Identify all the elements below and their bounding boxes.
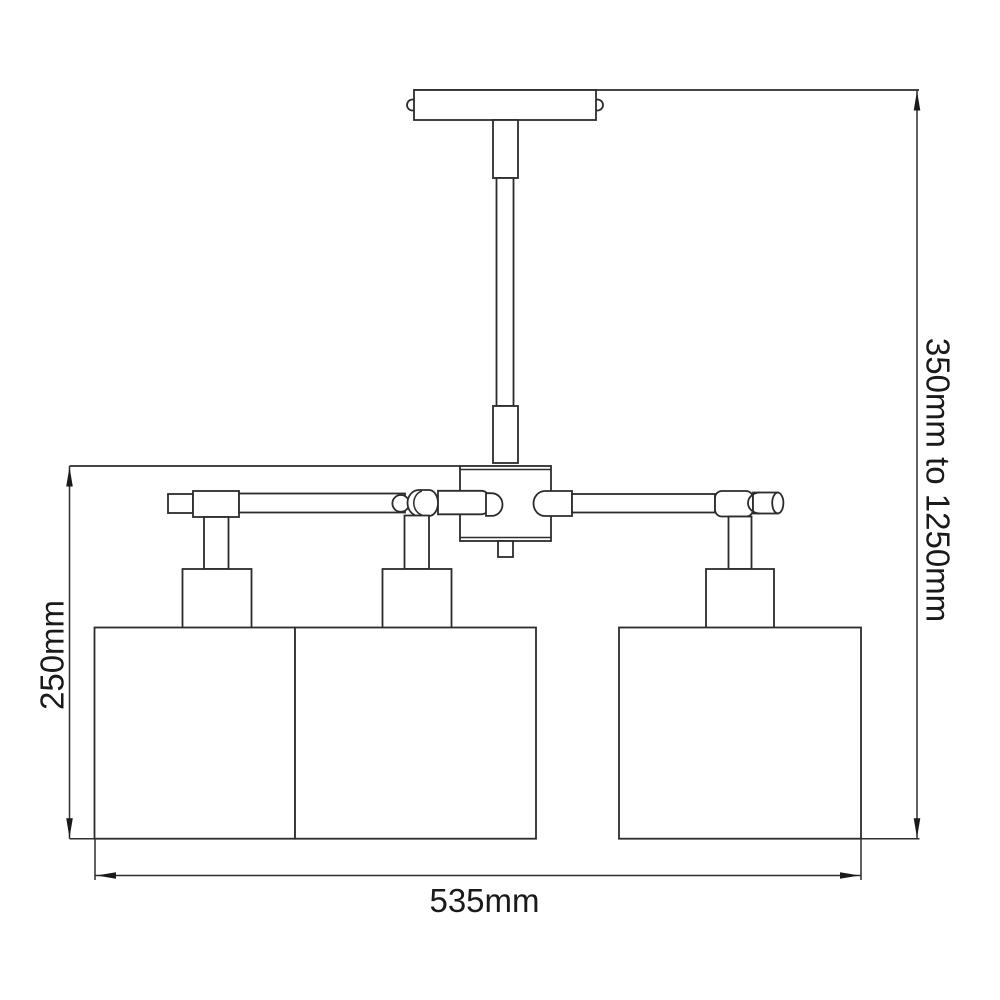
svg-text:350mm to 1250mm: 350mm to 1250mm: [920, 338, 957, 622]
svg-text:250mm: 250mm: [34, 600, 71, 710]
svg-text:535mm: 535mm: [429, 882, 539, 919]
